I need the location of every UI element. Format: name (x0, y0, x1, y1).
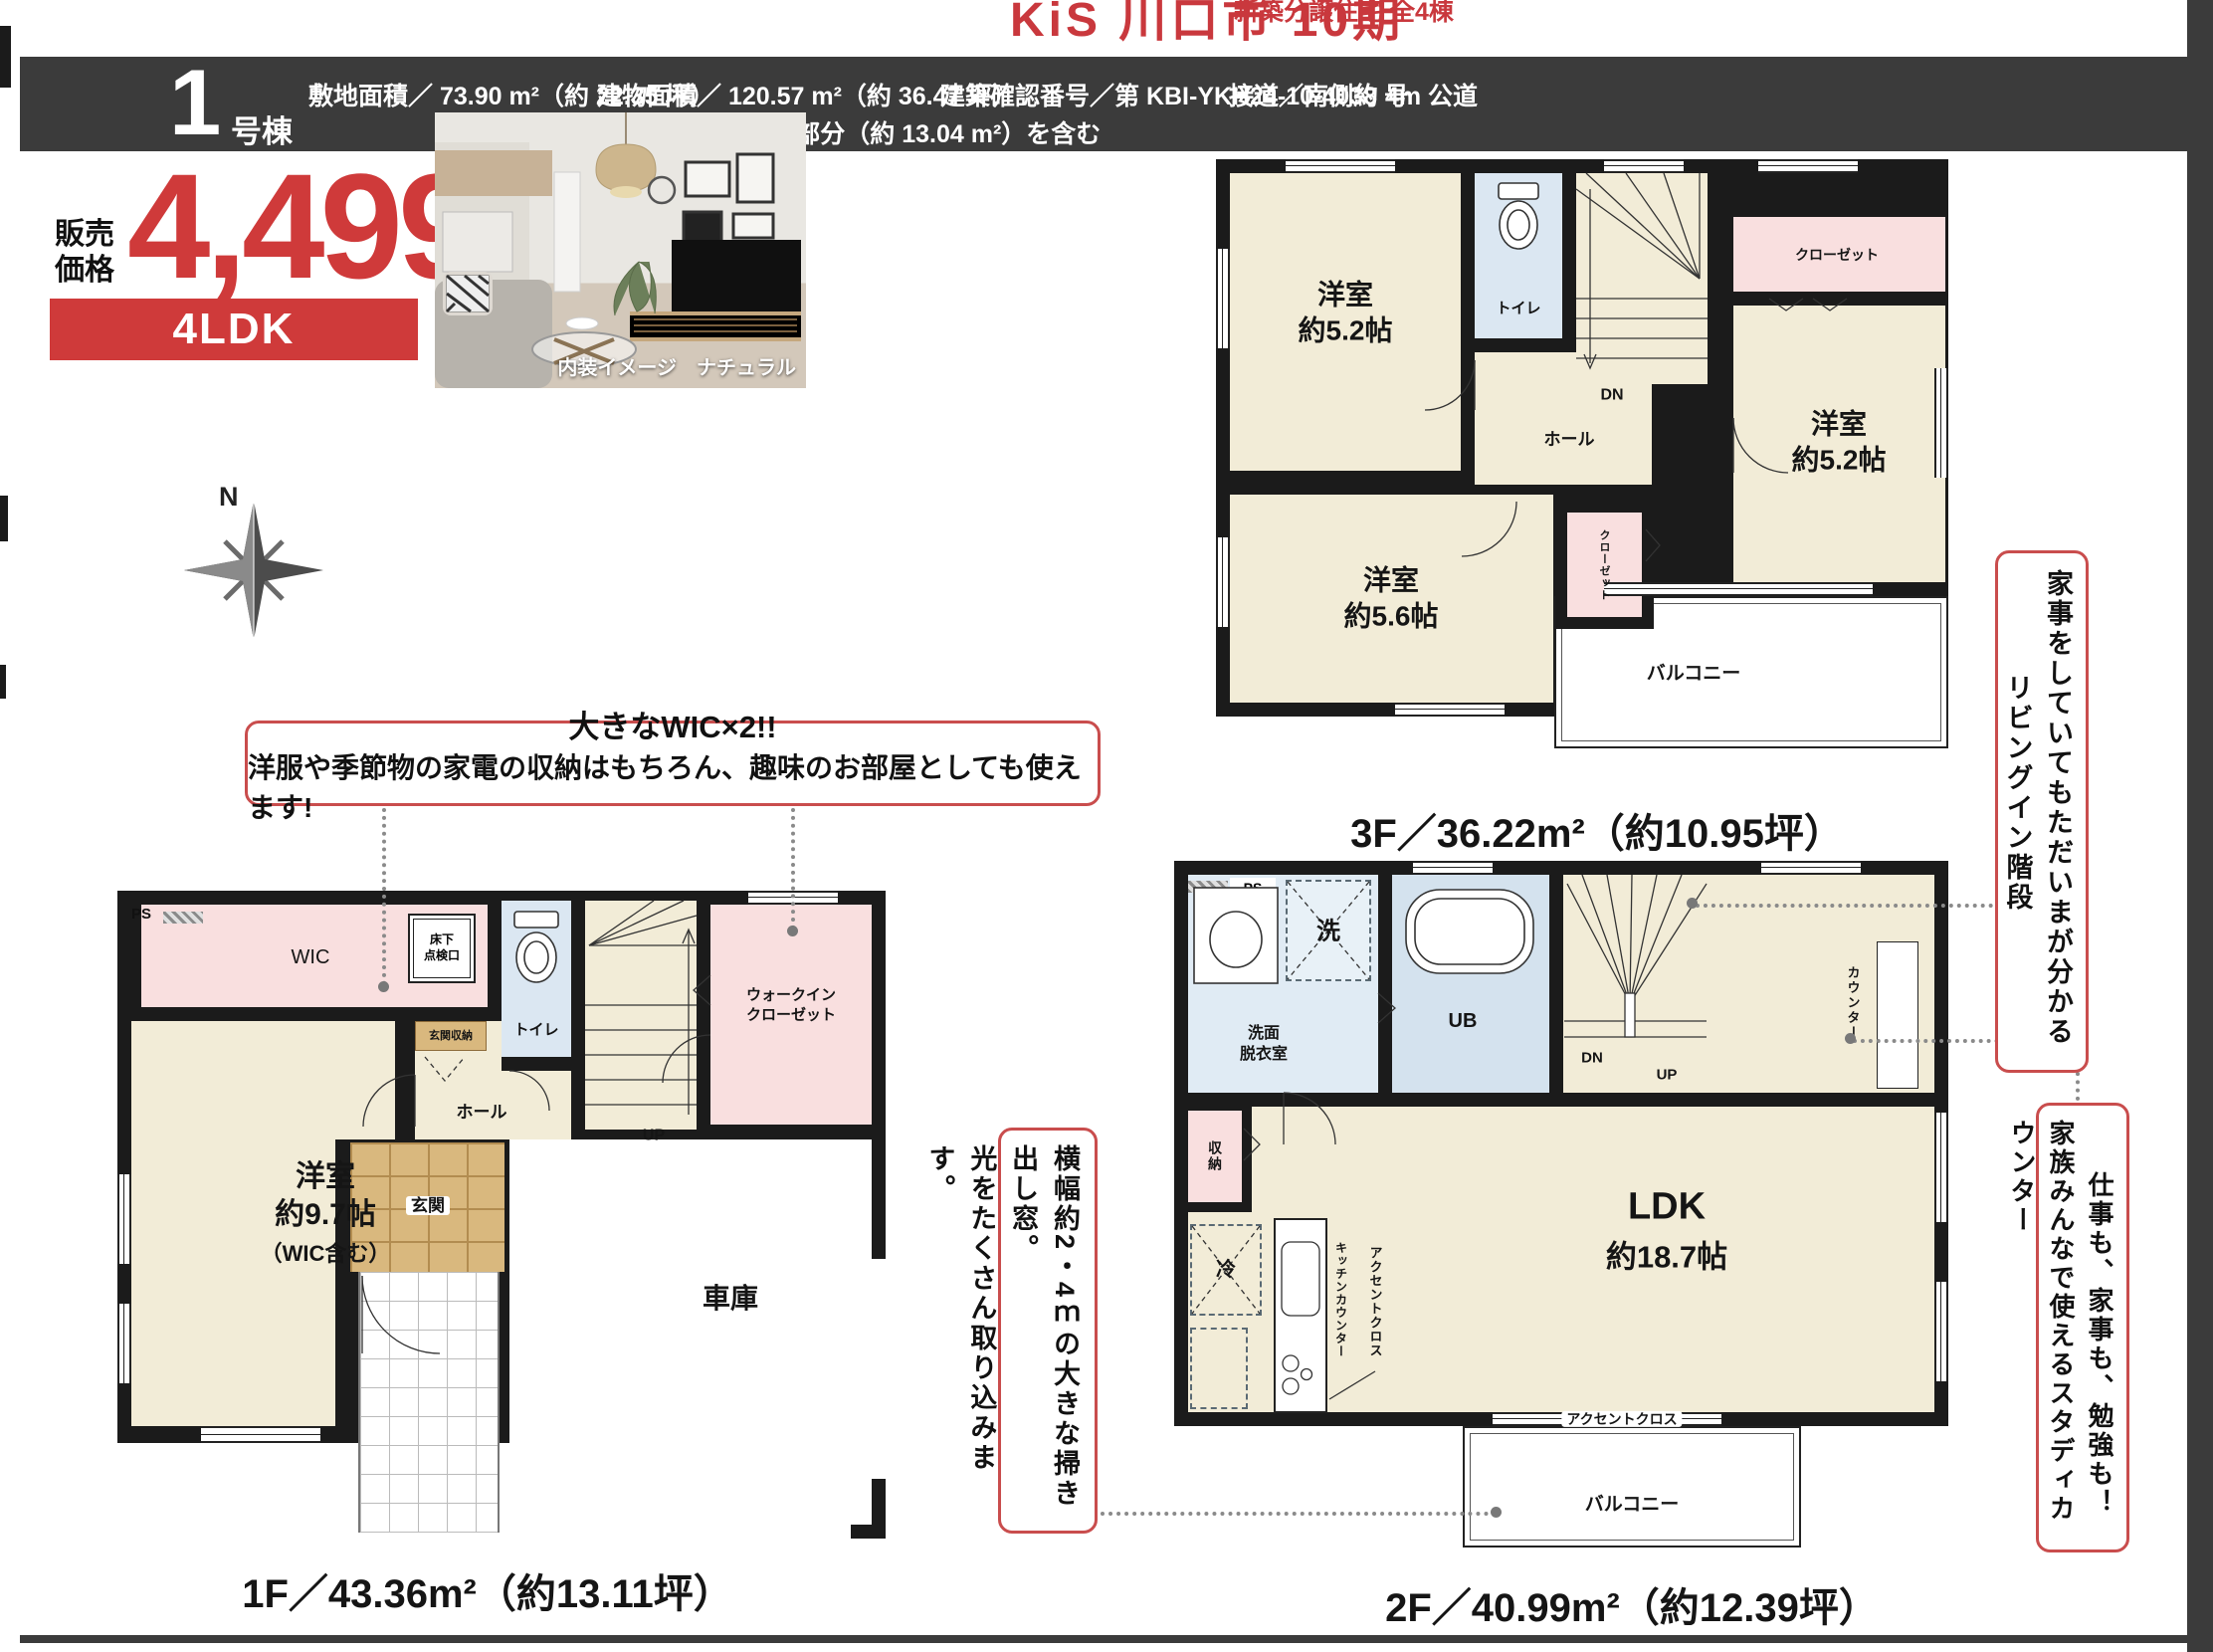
fridge-label: 冷 (1216, 1257, 1236, 1283)
hall-label: ホール (457, 1102, 507, 1124)
ldk-name: LDK (1628, 1186, 1706, 1228)
leader-dot (1845, 1033, 1856, 1044)
leader-line (1101, 1512, 1497, 1516)
unit-number: 1 (169, 55, 221, 149)
room-size: 約5.2帖 (1299, 315, 1393, 346)
floorplan-3f: 洋室 約5.2帖 トイレ DN ホール クローゼット 洋室 約5.2帖 クローゼ… (1216, 159, 1952, 756)
driveway-strip-1f (358, 1272, 500, 1533)
edge-mark (0, 665, 6, 699)
callout-wic-title: 大きなWIC×2!! (568, 702, 776, 746)
toilet-label: トイレ (1496, 299, 1540, 318)
balcony-label: バルコニー (1647, 663, 1741, 688)
leader-dot (378, 981, 389, 992)
balcony-label: バルコニー (1585, 1494, 1680, 1519)
wash-label: 洗 (1316, 916, 1340, 946)
window (1216, 249, 1230, 348)
room-name: 洋室 (1811, 409, 1867, 440)
price-amount: 4,499 (127, 151, 476, 301)
window (1934, 1282, 1948, 1381)
compass-north-label: N (219, 482, 239, 513)
room-label: 洋室 約5.2帖 (1792, 407, 1887, 480)
room-name: 洋室 (296, 1160, 355, 1193)
pantry-space-2f (1190, 1328, 1248, 1409)
callout-window-col1: 横幅約2・4ｍの大きな掃き出し窓。 (1001, 1144, 1085, 1517)
price-label: 販売 価格 (55, 217, 114, 289)
kitchen-island-2f (1274, 1218, 1327, 1413)
room-name: 洋室 (1317, 280, 1373, 310)
accent-cross-label-h: アクセントクロス (1561, 1410, 1682, 1428)
ldk-size: 約18.7帖 (1606, 1240, 1727, 1275)
interior-photo: 内装イメージ ナチュラル (435, 112, 806, 388)
leader-line (382, 808, 386, 985)
kitchen-counter-label: キッチンカウンター (1333, 1242, 1350, 1358)
leader-line (791, 808, 795, 929)
accent-cross-label-v: アクセントクロス (1366, 1246, 1385, 1357)
window (1761, 861, 1861, 875)
room-label: 洋室 約5.2帖 (1299, 278, 1393, 350)
ps-label-2f: PS (1244, 880, 1263, 896)
room-size: 約5.6帖 (1344, 601, 1439, 632)
ps-hatch (1188, 881, 1228, 893)
callout-stairs-col2: リビングイン階段 (1997, 674, 2038, 1054)
inspection-box: 床下 点検口 (408, 914, 476, 983)
accent-text: アクセントクロス (1561, 1411, 1682, 1427)
closet-label: クローゼット (1596, 529, 1612, 601)
callout-counter: 仕事も、家事も、勉強も！ 家族みんなで使えるスタディカウンター (2036, 1103, 2129, 1552)
room-size: 約9.7帖 (275, 1197, 376, 1230)
window (1934, 368, 1948, 478)
room-label: 洋室 約5.6帖 (1344, 563, 1439, 636)
window (117, 1304, 131, 1383)
edge-mark (0, 496, 8, 541)
floor2-title: 2F／40.99m²（約12.39坪） (1385, 1582, 1879, 1634)
right-edge-bar (2187, 0, 2213, 1652)
hall-3f (1475, 352, 1652, 485)
callout-counter-col1: 仕事も、家事も、勉強も！ (2080, 1171, 2118, 1536)
wic-label: WIC (292, 944, 330, 970)
room-label: 洋室 約9.7帖 （WIC含む） (261, 1158, 391, 1271)
up-label: UP (1657, 1065, 1678, 1085)
masthead-subtitle: 新築分譲住宅 全4棟 (1234, 0, 1454, 28)
callout-window: 横幅約2・4ｍの大きな掃き出し窓。 光をたくさん取り込みます。 (998, 1128, 1098, 1534)
room-size: 約5.2帖 (1792, 445, 1887, 476)
callout-counter-col2: 家族みんなで使えるスタディカウンター (2002, 1120, 2080, 1536)
footer-rule (20, 1635, 2187, 1643)
price-label-2: 価格 (55, 254, 114, 287)
inspection-label-2: 点検口 (424, 948, 460, 964)
up-label: UP (643, 1127, 665, 1147)
room-name: 洋室 (1363, 565, 1419, 596)
ub-label: UB (1449, 1008, 1478, 1034)
compass-rose-icon (179, 476, 328, 655)
balcony-2f (1463, 1426, 1801, 1548)
hall-label: ホール (1544, 429, 1595, 451)
garage-wall (851, 1525, 886, 1539)
edge-mark (0, 26, 11, 88)
flyer-page: KiS 川口市 10期 新築分譲住宅 全4棟 1 号棟 敷地面積／ 73.90 … (0, 0, 2213, 1652)
floorplan-2f: PS (1164, 854, 1950, 1580)
window (1758, 159, 1858, 173)
window (201, 1426, 320, 1443)
leader-dot (787, 926, 798, 936)
leader-dot (1687, 898, 1698, 909)
callout-stairs: 家事をしていてもただいまが分かる リビングイン階段 (1995, 550, 2089, 1073)
ldk-label: LDK 約18.7帖 (1606, 1183, 1727, 1282)
window (1604, 159, 1684, 173)
window (117, 1174, 131, 1264)
window (1934, 1113, 1948, 1222)
price-label-1: 販売 (55, 218, 114, 251)
plan-type: 4LDK (173, 305, 296, 354)
washroom-line2: 脱衣室 (1240, 1046, 1288, 1063)
dn-label: DN (1600, 386, 1623, 407)
callout-window-col2: 光をたくさん取り込みます。 (918, 1144, 1002, 1517)
counter-desk-2f (1877, 941, 1918, 1089)
plan-type-band: 4LDK (50, 299, 418, 360)
interior-photo-art (435, 112, 806, 388)
entry-label: 玄関 (406, 1195, 450, 1217)
garage-wall (872, 1139, 886, 1259)
walls (502, 1057, 571, 1071)
washroom-line1: 洗面 (1248, 1025, 1280, 1042)
floor1-title: 1F／43.36m²（約13.11坪） (242, 1568, 733, 1620)
window (1216, 537, 1230, 627)
walkin-line1: ウォークイン (746, 987, 836, 1004)
balcony-3f (1554, 596, 1948, 748)
window (1413, 861, 1493, 875)
floorplan-1f: PS 床下 点検口 (111, 886, 888, 1543)
storage-label: 収納 (1205, 1140, 1225, 1172)
ps-hatch (163, 912, 203, 924)
walkin-line2: クローゼット (746, 1006, 836, 1023)
walkin-label: ウォークイン クローゼット (746, 986, 836, 1025)
header-bar: 1 号棟 敷地面積／ 73.90 m²（約 22.35 坪） 建物面積／ 120… (20, 57, 2187, 151)
callout-stairs-col1: 家事をしていてもただいまが分かる (2038, 569, 2079, 1054)
leader-dot (1491, 1507, 1502, 1518)
compass: N (179, 476, 328, 655)
washroom-label: 洗面 脱衣室 (1240, 1024, 1288, 1066)
counter-label: カウンター (1844, 966, 1863, 1041)
garage-label: 車庫 (703, 1281, 758, 1317)
callout-wic-body: 洋服や季節物の家電の収納はもちろん、趣味のお部屋としても使えます! (248, 746, 1098, 826)
window (1604, 582, 1873, 596)
entry-text: 玄関 (406, 1196, 450, 1215)
leader-line (1696, 904, 1993, 908)
dn-label: DN (1581, 1048, 1603, 1068)
floor3-title: 3F／36.22m²（約10.95坪） (1350, 808, 1844, 860)
photo-caption: 内装イメージ ナチュラル (557, 351, 796, 380)
window (1395, 703, 1505, 717)
road-info: 接道／南側約 4m 公道 (1229, 77, 1478, 112)
toilet-label: トイレ (513, 1020, 558, 1040)
ps-label-1f: PS (131, 906, 151, 923)
closet-label: クローゼット (1795, 246, 1879, 264)
callout-wic: 大きなWIC×2!! 洋服や季節物の家電の収納はもちろん、趣味のお部屋としても使… (245, 721, 1101, 806)
inspection-label-1: 床下 (430, 932, 454, 948)
entry-storage-label: 玄関収納 (429, 1029, 473, 1043)
ps-gap-2f: PS (1230, 878, 1276, 898)
window (1286, 159, 1395, 173)
room-note: （WIC含む） (261, 1241, 391, 1266)
stairs-1f (585, 901, 697, 1130)
bathroom-2f (1392, 875, 1549, 1093)
